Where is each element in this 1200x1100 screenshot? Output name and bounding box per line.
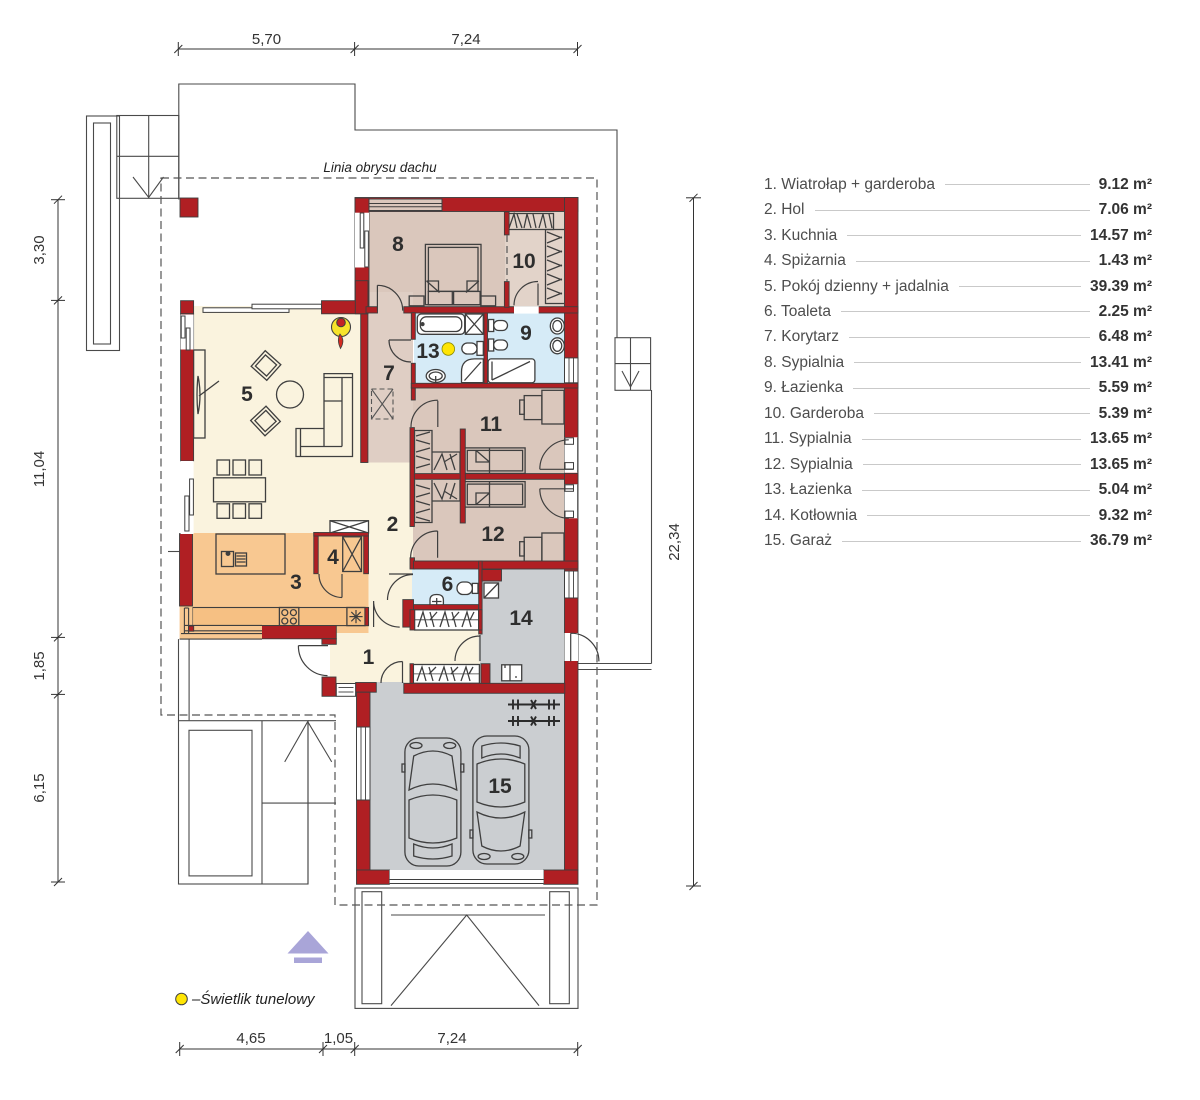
svg-text:5,70: 5,70 [252, 31, 281, 48]
svg-text:12: 12 [481, 523, 504, 546]
svg-text:22,34: 22,34 [666, 523, 683, 561]
svg-text:11: 11 [480, 413, 503, 436]
svg-text:7,24: 7,24 [437, 1030, 466, 1047]
svg-text:1,85: 1,85 [31, 651, 48, 680]
svg-text:11,04: 11,04 [31, 451, 48, 487]
svg-text:6: 6 [442, 573, 454, 596]
svg-text:1,05: 1,05 [324, 1030, 353, 1047]
svg-text:7,24: 7,24 [451, 31, 480, 48]
svg-text:–Świetlik tunelowy: –Świetlik tunelowy [191, 990, 316, 1008]
svg-text:14: 14 [509, 607, 533, 630]
svg-text:4,65: 4,65 [236, 1030, 265, 1047]
svg-text:Linia obrysu dachu: Linia obrysu dachu [323, 160, 437, 175]
svg-text:4: 4 [327, 546, 339, 569]
svg-text:6,15: 6,15 [31, 773, 48, 802]
svg-text:9: 9 [520, 322, 532, 345]
svg-text:15: 15 [488, 775, 512, 798]
svg-text:1: 1 [363, 646, 375, 669]
svg-text:5: 5 [241, 383, 253, 406]
svg-text:7: 7 [383, 362, 395, 385]
svg-text:3: 3 [290, 571, 302, 594]
svg-text:10: 10 [512, 250, 535, 273]
svg-text:8: 8 [392, 233, 404, 256]
svg-text:3,30: 3,30 [31, 235, 48, 264]
svg-text:2: 2 [387, 513, 399, 536]
svg-text:13: 13 [416, 340, 439, 363]
